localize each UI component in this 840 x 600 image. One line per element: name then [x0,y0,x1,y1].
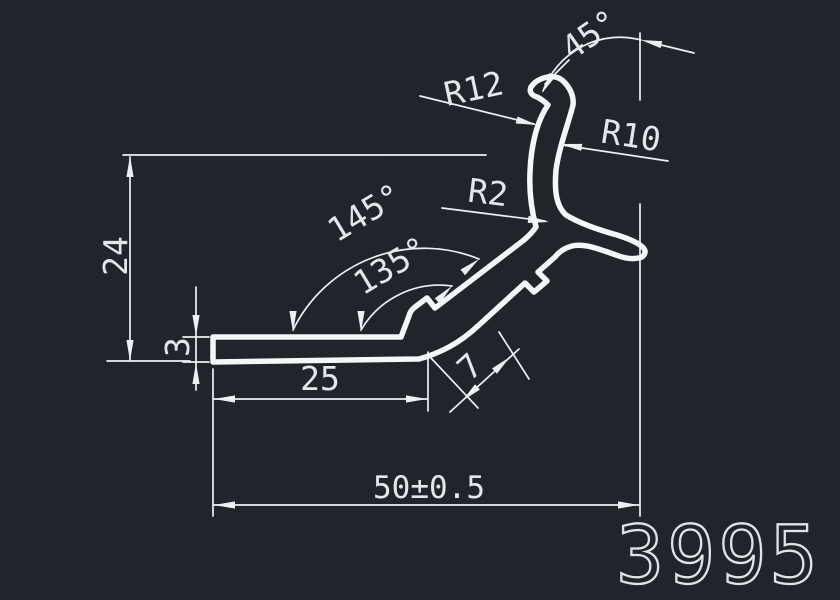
dim-135-label: 135° [347,228,435,302]
dim-7-arrow-upper [492,357,510,374]
dim-25-arrow-right [406,395,427,402]
dim-r12-arrow [516,117,537,126]
drawing-svg: 24 3 25 50±0.5 7 145° [0,0,840,600]
dim-45-arrow-right [641,40,662,48]
dim-25-label: 25 [300,359,340,398]
cad-canvas: 24 3 25 50±0.5 7 145° [0,0,840,600]
dim-135-arrow-left [357,311,364,332]
dim-7-ext-upper [499,332,529,379]
dim-145-arrow-right [461,259,480,275]
dim-25-arrow-left [214,395,235,402]
dim-r2-label: R2 [466,171,510,215]
dim-overall-50: 50±0.5 [213,33,640,516]
dim-24-arrow-up [126,156,133,177]
dim-thickness-3: 3 [158,287,209,390]
dim-145-label: 145° [321,175,409,249]
dim-r12-label: R12 [440,63,506,114]
profile [213,77,645,362]
dim-50-label: 50±0.5 [373,470,485,506]
dim-3-label: 3 [158,337,197,357]
dim-web-7: 7 [431,332,529,412]
dim-3-arrow-up [192,363,199,384]
dim-24-arrow-down [126,340,133,361]
dim-radius-r10: R10 [560,112,668,161]
part-number: 3995 [616,509,821,600]
dim-radius-r12: R12 [420,63,537,125]
dim-angle-135: 135° [347,228,452,332]
dim-45-arrow-tail [661,45,694,53]
profile-outline [213,77,645,362]
dim-50-arrow-right [618,501,639,508]
dim-145-arrow-left [289,311,296,332]
dim-50-arrow-left [214,501,235,508]
dim-3-arrow-down [192,315,199,336]
dim-24-label: 24 [96,236,135,276]
